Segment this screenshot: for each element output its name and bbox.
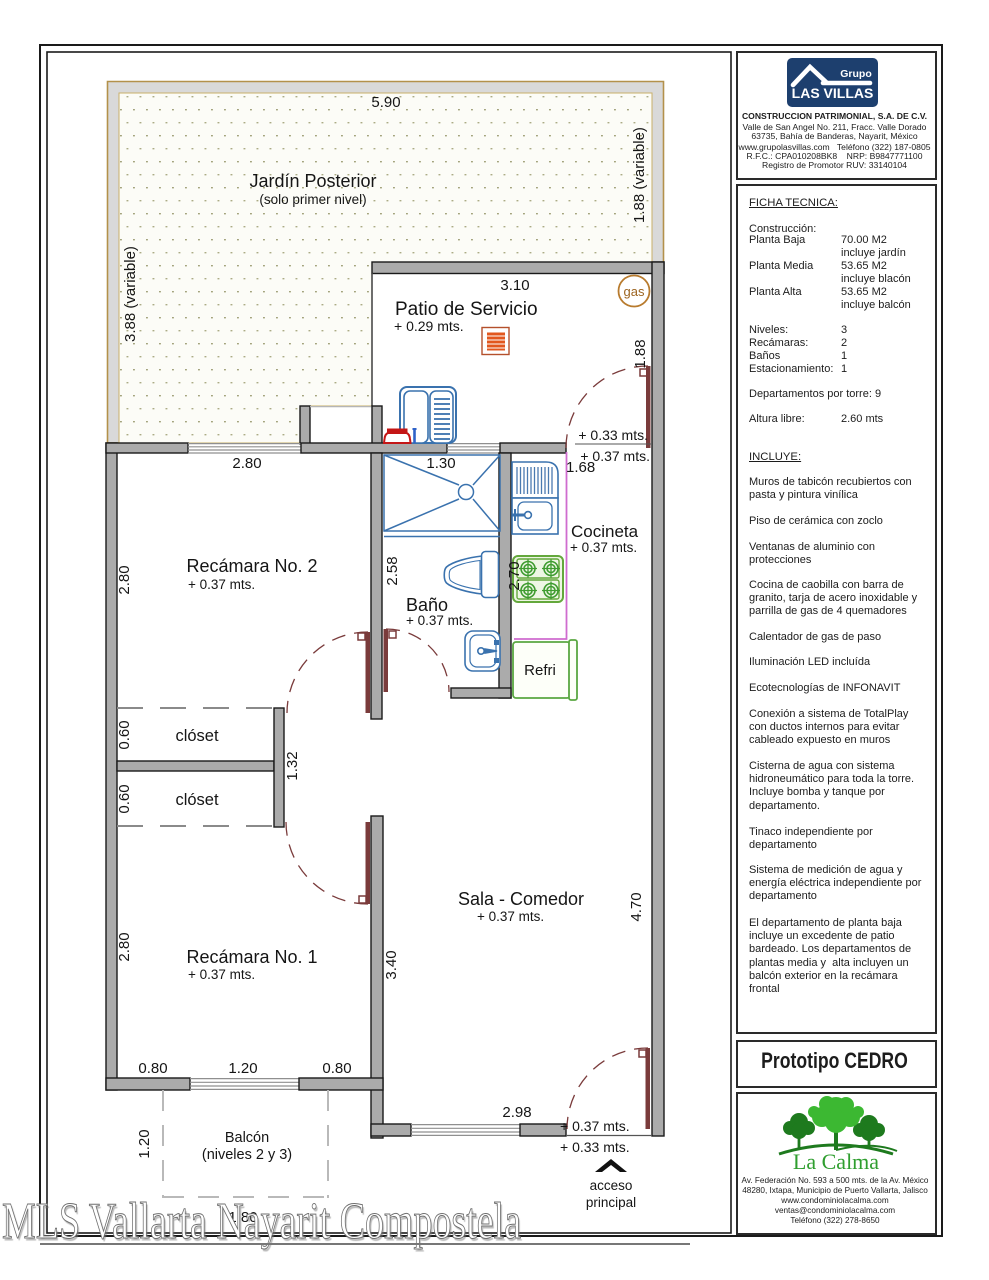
svg-text:La Calma: La Calma <box>793 1149 879 1174</box>
